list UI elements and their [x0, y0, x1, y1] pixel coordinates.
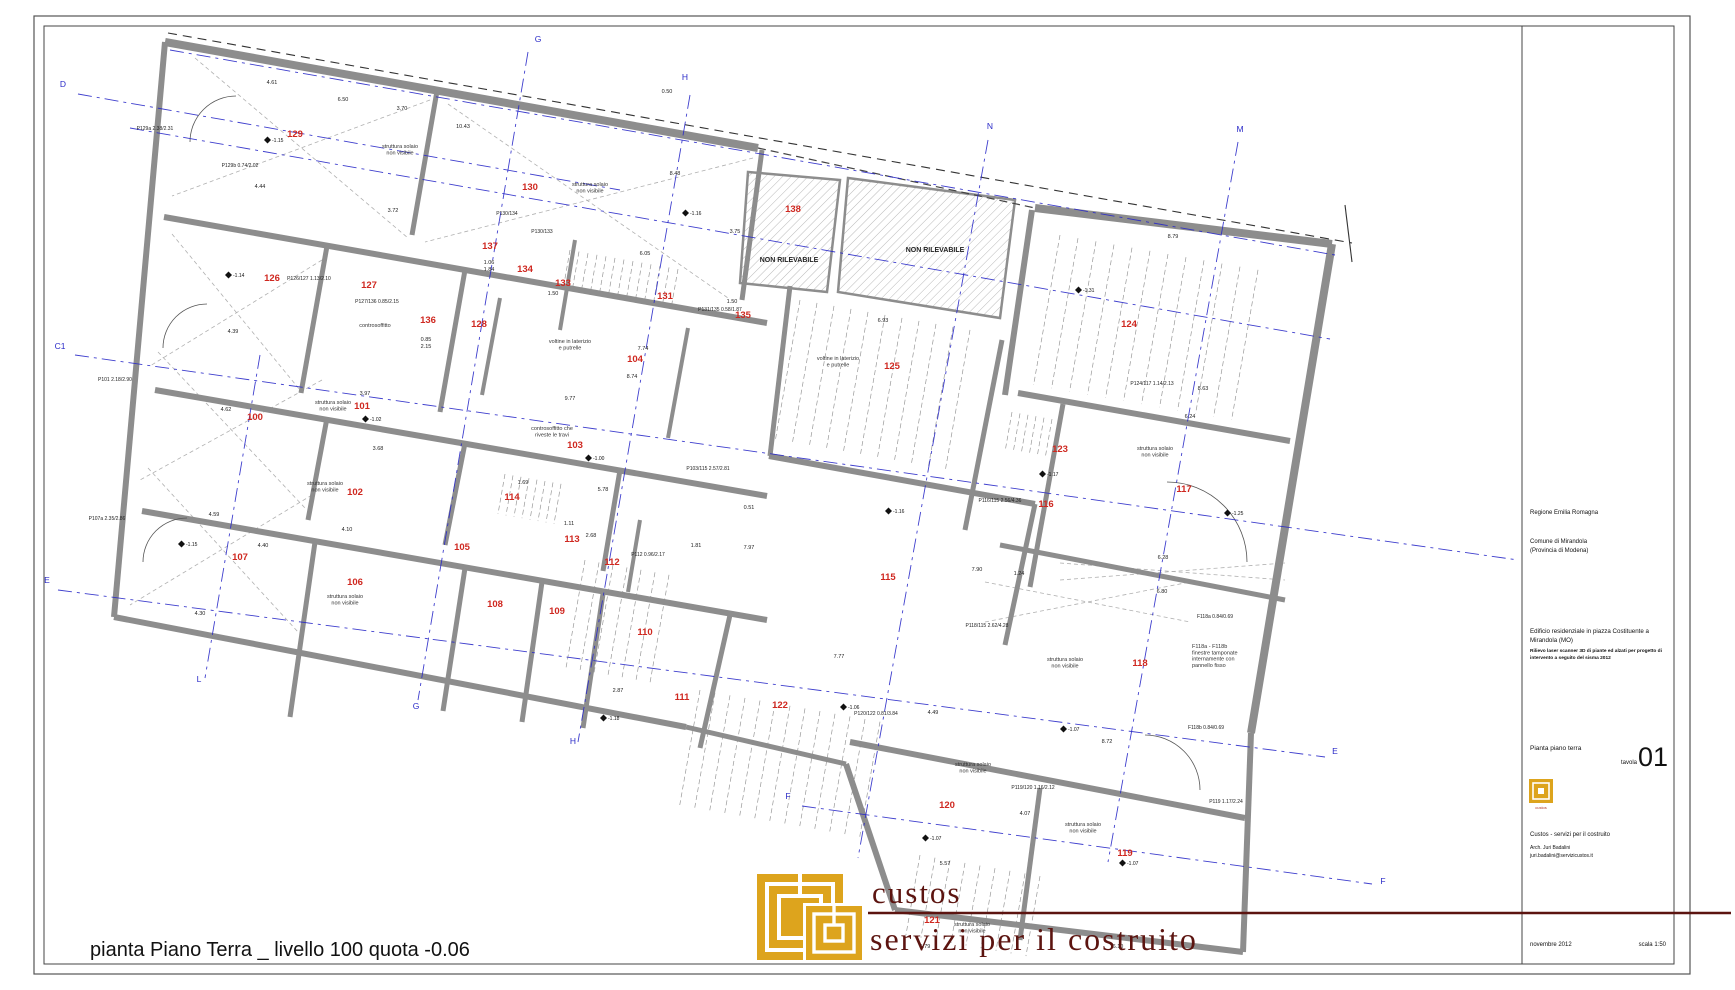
- dimension-label: 6.50: [338, 97, 349, 103]
- dimension-label: 3.72: [388, 208, 399, 214]
- dimension-label: 2.15: [421, 344, 432, 350]
- room-number: 109: [549, 606, 565, 617]
- dimension-label: 1.24: [1014, 571, 1025, 577]
- room-number: 124: [1121, 319, 1138, 330]
- room-number: 111: [675, 692, 691, 703]
- room-number: 131: [657, 291, 674, 302]
- dimension-label: 4.62: [221, 407, 232, 413]
- dimension-label: 1.50: [727, 299, 738, 305]
- title-block: Regione Emilia Romagna Comune di Mirando…: [1522, 26, 1668, 964]
- dimension-label: 2.87: [613, 688, 624, 694]
- opening-label: P120/122 0.81/3.84: [854, 711, 898, 717]
- dimension-label: 1.69: [518, 480, 529, 486]
- opening-label: P119 1.17/2.24: [1209, 799, 1243, 805]
- grid-axis-letter: F: [1380, 876, 1385, 886]
- room-number: 128: [471, 319, 487, 330]
- dimension-label: 6.24: [1185, 414, 1196, 420]
- architect-email: juri.badalini@servizicustos.it: [1529, 853, 1593, 859]
- room-number: 115: [880, 572, 896, 583]
- project-subtitle-2: intervento a seguito del sisma 2012: [1530, 655, 1611, 661]
- room-number: 112: [604, 557, 619, 568]
- dimension-label: 4.59: [209, 512, 220, 518]
- building-outline-fill: [114, 42, 1332, 952]
- dimension-label: 2.68: [586, 533, 597, 539]
- plan-annotation: struttura solaionon visibile: [1137, 446, 1173, 458]
- grid-axis-letter: G: [535, 34, 542, 44]
- dimension-label: 9.77: [565, 396, 576, 402]
- grid-axis-letter: H: [682, 72, 688, 82]
- dimension-label: 0.51: [744, 505, 755, 511]
- non-rilevabile-label: NON RILEVABILE: [906, 247, 965, 254]
- drawing-sheet: 1291301381371341331311351261271361281241…: [0, 0, 1735, 990]
- dimension-label: 5.57: [940, 861, 951, 867]
- opening-label: P107a 2.35/2.86: [89, 516, 126, 522]
- dimension-label: 4.49: [928, 710, 939, 716]
- architect-name: Arch. Juri Badalini: [1530, 845, 1570, 851]
- grid-axis-letter: D: [60, 79, 66, 89]
- room-number: 133: [555, 278, 571, 289]
- dimension-label: 8.63: [1198, 386, 1209, 392]
- spot-elevation-value: -1.00: [593, 456, 605, 462]
- spot-elevation-value: -1.14: [233, 273, 245, 279]
- plan-annotation: struttura solaionon visibile: [315, 400, 351, 412]
- spot-elevation-value: -1.31: [1083, 288, 1095, 294]
- plan-annotation: struttura solaionon visibile: [327, 594, 363, 606]
- grid-axis-letter: E: [44, 575, 50, 585]
- dimension-label: 3.68: [373, 446, 384, 452]
- plan-annotation: controsoffitto: [359, 323, 390, 329]
- opening-label: P101 2.18/2.90: [98, 377, 132, 383]
- room-number: 138: [785, 204, 801, 215]
- room-number: 123: [1052, 444, 1068, 455]
- spot-elevation-value: -1.07: [930, 836, 942, 842]
- dimension-label: 8.72: [1102, 739, 1113, 745]
- spot-elevation-value: -1.16: [690, 211, 702, 217]
- grid-axis-letter: M: [1236, 124, 1243, 134]
- grid-axis-letter: G: [413, 701, 420, 711]
- plan-annotation: controsoffitto cheriveste le travi: [531, 426, 573, 438]
- opening-label: P130/134: [496, 211, 518, 217]
- dimension-label: 4.44: [255, 184, 266, 190]
- room-number: 130: [522, 182, 538, 193]
- room-number: 119: [1117, 848, 1132, 859]
- room-number: 114: [504, 492, 520, 503]
- non-rilevabile-label: NON RILEVABILE: [760, 257, 819, 264]
- dimension-label: 6.93: [878, 318, 889, 324]
- project-title-2: Mirandola (MO): [1530, 637, 1573, 644]
- building-fill-layer: [114, 42, 1332, 952]
- dimension-label: 4.10: [342, 527, 353, 533]
- room-number: 127: [361, 280, 377, 291]
- room-number: 134: [517, 264, 534, 275]
- custos-logo-icon: [757, 874, 865, 963]
- opening-label: P118/115 2.62/4.28: [966, 623, 1009, 629]
- grid-axis-letter: F: [785, 791, 790, 801]
- dimension-label: 4.40: [258, 543, 269, 549]
- dimension-label: 7.97: [744, 545, 755, 551]
- opening-label: P127/136 0.85/2.15: [355, 299, 399, 305]
- spot-elevation-value: -1.15: [186, 542, 198, 548]
- room-number: 105: [454, 542, 471, 553]
- dimension-label: 10.43: [456, 124, 470, 130]
- grid-axis-letter: L: [197, 674, 202, 684]
- plan-annotation: struttura solaionon visibile: [1047, 657, 1083, 669]
- opening-label: P129b 0.74/2.02: [222, 163, 259, 169]
- dimension-label: 3.97: [360, 391, 371, 397]
- dimension-label: 6.28: [1158, 555, 1169, 561]
- room-number: 117: [1176, 484, 1191, 495]
- opening-label: P112 0.96/2.17: [631, 552, 665, 558]
- dimension-label: 5.78: [598, 487, 609, 493]
- plan-annotation: struttura solaionon visibile: [307, 481, 343, 493]
- room-number: 102: [347, 487, 363, 498]
- dimension-label: 0.50: [662, 89, 673, 95]
- floor-plan-canvas: 1291301381371341331311351261271361281241…: [0, 0, 1735, 990]
- spot-elevation-value: -1.25: [1232, 511, 1244, 517]
- dimension-label: 6.80: [1157, 589, 1168, 595]
- dimension-label: 1.50: [548, 291, 559, 297]
- custos-mini-logo-icon: custos: [1529, 779, 1553, 810]
- room-number: 120: [939, 800, 955, 811]
- comune-text-2: (Provincia di Modena): [1530, 548, 1588, 554]
- opening-label: P129a 2.38/2.31: [137, 126, 174, 132]
- room-number: 110: [637, 627, 652, 638]
- room-number: 103: [567, 440, 583, 451]
- spot-elevation-value: -1.15: [272, 138, 284, 144]
- dimension-label: 0.85: [421, 337, 432, 343]
- sheet-scale: scala 1:50: [1639, 942, 1667, 948]
- room-number: 136: [420, 315, 436, 326]
- grid-axis-letter: H: [570, 736, 576, 746]
- opening-label: P124/117 1.14/2.13: [1130, 381, 1173, 387]
- dimension-label: 8.48: [670, 171, 681, 177]
- dimension-label: 4.39: [228, 329, 239, 335]
- dimension-label: 6.05: [640, 251, 651, 257]
- room-number: 116: [1038, 499, 1053, 510]
- opening-label: P131/135 0.58/1.87: [698, 307, 742, 313]
- opening-label: P130/133: [531, 229, 553, 235]
- spot-elevation-value: -1.02: [370, 417, 382, 423]
- opening-label: F118b 0.84/0.69: [1188, 725, 1224, 731]
- room-number: 113: [564, 534, 579, 545]
- tavola-number: 01: [1638, 742, 1668, 772]
- grid-axis-letter: E: [1332, 746, 1338, 756]
- dimension-label: 1.81: [691, 543, 702, 549]
- room-number: 108: [487, 599, 503, 610]
- room-number: 107: [232, 552, 248, 563]
- plan-annotation: struttura solaionon visibile: [955, 762, 991, 774]
- dimension-label: 7.77: [834, 654, 845, 660]
- dimension-label: 3.70: [397, 106, 408, 112]
- spot-elevation-value: -1.17: [1047, 472, 1059, 478]
- dimension-label: 1.11: [564, 521, 574, 527]
- plan-annotation: struttura solaionon visibile: [382, 144, 418, 156]
- spot-elevation-value: -1.18: [608, 716, 620, 722]
- project-subtitle-1: Rilievo laser scanner 3D di piante ed al…: [1530, 648, 1662, 654]
- sheet-name: Pianta piano terra: [1530, 745, 1582, 752]
- room-number: 104: [627, 354, 644, 365]
- opening-label: P119/120 1.16/2.12: [1011, 785, 1054, 791]
- room-number: 125: [884, 361, 901, 372]
- room-number: 137: [482, 241, 498, 252]
- dimension-label: 4.07: [1020, 811, 1031, 817]
- plan-annotation: struttura solaionon visibile: [1065, 822, 1101, 834]
- dimension-label: 7.74: [638, 346, 649, 352]
- opening-label: P116/115 2.56/4.36: [979, 498, 1022, 504]
- grid-axis-letter: N: [987, 121, 993, 131]
- dimension-label: 8.74: [627, 374, 638, 380]
- opening-label: P126/127 1.13/2.10: [287, 276, 331, 282]
- project-title-1: Edificio residenziale in piazza Costitue…: [1530, 628, 1650, 635]
- sheet-caption: pianta Piano Terra _ livello 100 quota -…: [90, 939, 470, 961]
- room-number: 101: [354, 401, 371, 412]
- dimension-label: 1.84: [484, 267, 495, 273]
- dimension-label: 4.30: [195, 611, 206, 617]
- dimension-label: 8.79: [1168, 234, 1179, 240]
- opening-label: P103/115 2.57/2.81: [686, 466, 729, 472]
- detail-line: [1345, 205, 1352, 262]
- tavola-label: tavola: [1621, 760, 1638, 766]
- room-number: 100: [247, 412, 263, 423]
- spot-elevation-value: -1.16: [893, 509, 905, 515]
- room-number: 129: [287, 129, 303, 140]
- dimension-label: 1.06: [484, 260, 495, 266]
- logo-word-servizi: servizi per il costruito: [870, 921, 1198, 957]
- room-number: 126: [264, 273, 280, 284]
- spot-elevation-value: -1.07: [1068, 727, 1080, 733]
- room-number: 122: [772, 700, 788, 711]
- grid-axis-letter: C1: [55, 341, 66, 351]
- dimension-label: 3.75: [730, 229, 741, 235]
- spot-elevation-value: -1.07: [1127, 861, 1139, 867]
- regione-text: Regione Emilia Romagna: [1530, 510, 1599, 516]
- firm-name: Custos - servizi per il costruito: [1530, 832, 1611, 838]
- dimension-label: 7.90: [972, 567, 983, 573]
- sheet-date: novembre 2012: [1530, 942, 1572, 948]
- room-number: 106: [347, 577, 363, 588]
- spot-elevation-value: -1.06: [848, 705, 860, 711]
- logo-word-custos: custos: [872, 875, 962, 910]
- room-number: 118: [1132, 658, 1147, 669]
- mini-logo-caption: custos: [1535, 805, 1547, 810]
- dimension-label: 4.61: [267, 80, 278, 86]
- opening-label: F118a 0.84/0.69: [1197, 614, 1233, 620]
- plan-annotation: struttura solaionon visibile: [572, 182, 608, 194]
- comune-text-1: Comune di Mirandola: [1530, 539, 1588, 545]
- spot-elevation-marker: [600, 715, 607, 722]
